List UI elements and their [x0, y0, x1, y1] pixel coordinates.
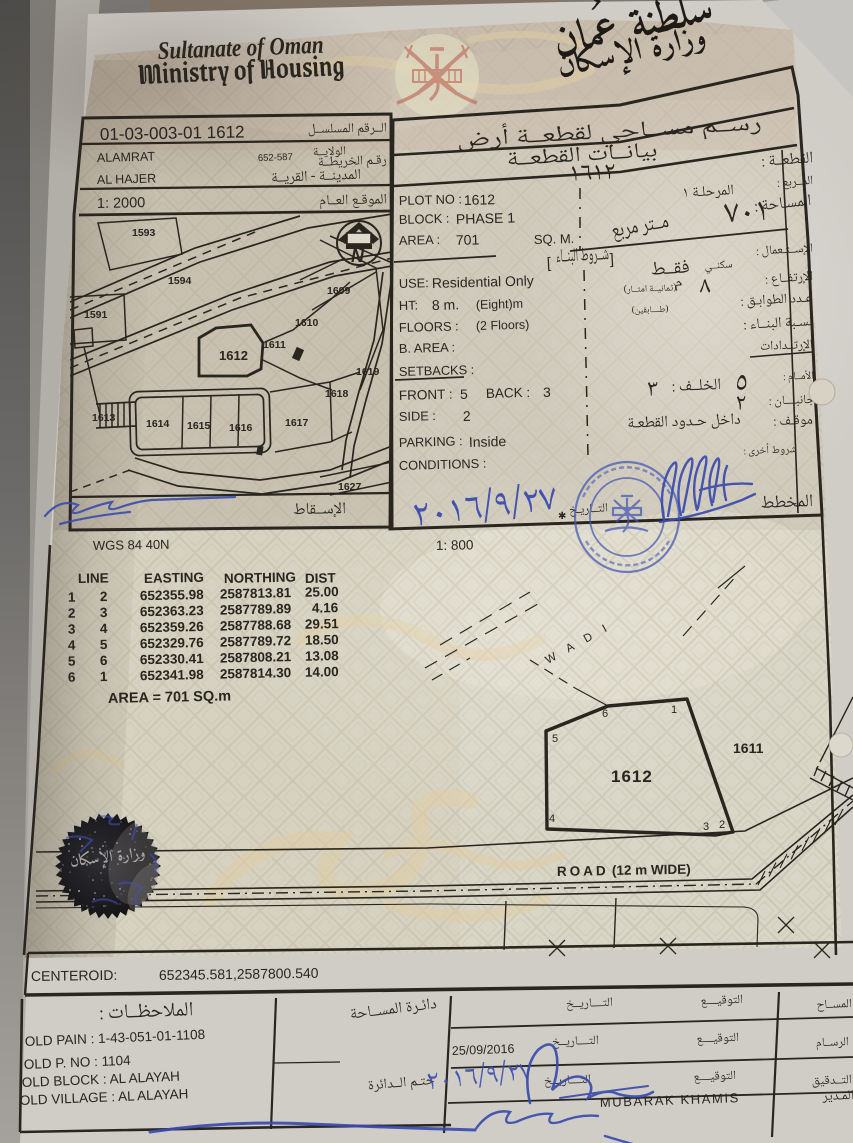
svg-text:1593: 1593	[132, 227, 156, 239]
svg-text:18.50: 18.50	[305, 632, 339, 648]
svg-text:2: 2	[719, 819, 725, 831]
svg-text:2587788.68: 2587788.68	[220, 617, 292, 634]
svg-text:4.16: 4.16	[312, 600, 339, 616]
svg-text:BACK :: BACK :	[486, 385, 531, 401]
svg-text:29.51: 29.51	[305, 616, 340, 632]
svg-text:1610: 1610	[295, 317, 319, 329]
svg-text:2587814.30: 2587814.30	[220, 665, 292, 681]
svg-text:5: 5	[68, 654, 76, 669]
svg-text:BLOCK :: BLOCK :	[399, 211, 450, 227]
svg-text:652363.23: 652363.23	[140, 603, 205, 619]
svg-text:FRONT :: FRONT :	[399, 387, 453, 403]
svg-text:1612: 1612	[219, 348, 248, 363]
svg-text:1617: 1617	[285, 417, 309, 429]
svg-text:AREA = 701 SQ.m: AREA = 701 SQ.m	[108, 688, 231, 707]
svg-text:25/09/2016: 25/09/2016	[452, 1042, 515, 1058]
svg-text:1614: 1614	[146, 418, 170, 430]
svg-text:1612: 1612	[611, 767, 653, 786]
svg-text:3: 3	[703, 821, 709, 833]
svg-text:AL HAJER: AL HAJER	[97, 171, 157, 187]
svg-text:HT:: HT:	[399, 298, 419, 313]
svg-text:13.08: 13.08	[305, 648, 340, 664]
svg-text:NORTHING: NORTHING	[224, 569, 296, 586]
svg-text:1619: 1619	[356, 366, 380, 378]
svg-text:2587808.21: 2587808.21	[220, 649, 292, 666]
svg-text:652-587: 652-587	[258, 152, 293, 164]
svg-text:FLOORS :: FLOORS :	[399, 318, 459, 335]
svg-text:25.00: 25.00	[305, 584, 339, 600]
svg-text:EASTING: EASTING	[144, 570, 204, 586]
svg-text:3: 3	[100, 605, 108, 620]
svg-text:3: 3	[543, 384, 551, 400]
svg-text:5: 5	[100, 637, 108, 652]
svg-text:CENTEROID:: CENTEROID:	[31, 967, 118, 984]
svg-text:2: 2	[68, 606, 76, 621]
svg-text:1609: 1609	[327, 285, 351, 297]
svg-text:1: 800: 1: 800	[436, 537, 474, 553]
svg-text:01-03-003-01 1612: 01-03-003-01 1612	[100, 122, 245, 144]
svg-text:3: 3	[68, 622, 76, 637]
svg-text:14.00: 14.00	[305, 664, 339, 680]
svg-text:6: 6	[68, 670, 76, 685]
svg-text:AREA :: AREA :	[399, 232, 441, 248]
svg-text:6: 6	[602, 708, 608, 720]
svg-text:8 m.: 8 m.	[432, 296, 460, 313]
svg-text:1: 1	[671, 704, 677, 716]
svg-text:5: 5	[460, 386, 468, 402]
svg-text:4: 4	[68, 638, 76, 653]
svg-text:USE:: USE:	[399, 275, 429, 291]
svg-text:1627: 1627	[338, 481, 362, 493]
svg-text:1591: 1591	[84, 309, 108, 321]
svg-text:1: 2000: 1: 2000	[97, 195, 146, 212]
svg-text:652329.76: 652329.76	[140, 635, 205, 651]
svg-text:2587813.81: 2587813.81	[220, 585, 292, 602]
svg-text:2: 2	[463, 408, 471, 424]
svg-text:4: 4	[549, 813, 555, 825]
svg-text:1615: 1615	[187, 420, 211, 432]
svg-text:1612: 1612	[464, 191, 496, 208]
svg-text:(12 m WIDE): (12 m WIDE)	[612, 862, 691, 878]
svg-text:Residential Only: Residential Only	[432, 272, 534, 291]
svg-text:701: 701	[456, 231, 480, 248]
svg-text:✱: ✱	[558, 511, 566, 522]
svg-text:PLOT NO :: PLOT NO :	[399, 191, 462, 208]
svg-text:CONDITIONS :: CONDITIONS :	[399, 456, 487, 473]
svg-text:Inside: Inside	[469, 433, 507, 450]
svg-text:SIDE :: SIDE :	[399, 408, 436, 424]
svg-text:ALAMRAT: ALAMRAT	[97, 149, 156, 165]
svg-text:5: 5	[552, 733, 558, 745]
svg-text:1611: 1611	[263, 339, 286, 351]
svg-text:652330.41: 652330.41	[140, 651, 205, 667]
svg-text:1613: 1613	[92, 412, 116, 424]
svg-text:652341.98: 652341.98	[140, 667, 205, 683]
svg-text:N: N	[351, 246, 365, 266]
svg-text:1616: 1616	[229, 422, 253, 434]
svg-text:PHASE 1: PHASE 1	[456, 209, 516, 227]
svg-text:SETBACKS :: SETBACKS :	[399, 362, 475, 379]
svg-text:WGS 84 40N: WGS 84 40N	[93, 537, 170, 553]
svg-text:]: ]	[609, 251, 614, 268]
svg-text:B. AREA :: B. AREA :	[399, 340, 456, 356]
svg-text:652345.581,2587800.540: 652345.581,2587800.540	[159, 965, 319, 983]
svg-text:1618: 1618	[325, 388, 349, 400]
svg-text:1: 1	[68, 590, 76, 605]
svg-text:1611: 1611	[733, 740, 764, 756]
svg-text:LINE: LINE	[78, 570, 109, 586]
svg-text:4: 4	[100, 621, 108, 636]
svg-text:1594: 1594	[168, 275, 192, 287]
svg-text:2587789.89: 2587789.89	[220, 601, 292, 617]
svg-text:(2 Floors): (2 Floors)	[476, 318, 530, 333]
svg-text:652359.26: 652359.26	[140, 619, 205, 635]
svg-text:2: 2	[100, 589, 108, 604]
svg-text:2587789.72: 2587789.72	[220, 633, 292, 649]
svg-text:652355.98: 652355.98	[140, 587, 205, 603]
svg-text:1: 1	[100, 669, 108, 684]
svg-text:(Eight)m: (Eight)m	[476, 297, 524, 312]
svg-text:PARKING :: PARKING :	[399, 433, 463, 450]
svg-text:SQ. M.: SQ. M.	[534, 231, 575, 247]
svg-text:ROAD: ROAD	[557, 863, 609, 879]
svg-text:6: 6	[100, 653, 108, 668]
